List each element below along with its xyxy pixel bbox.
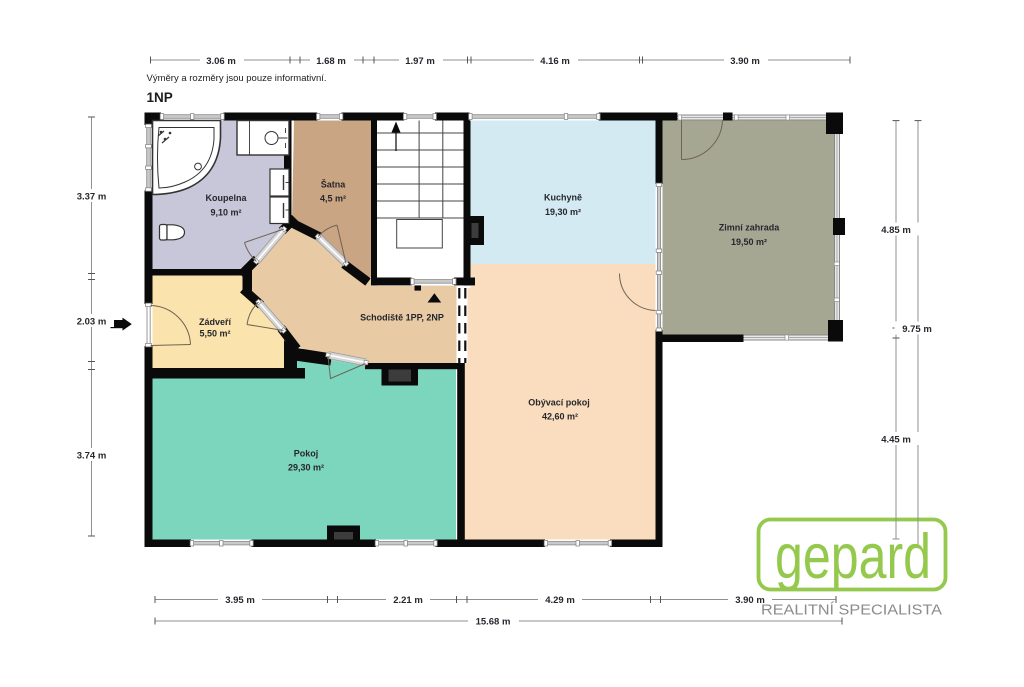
svg-text:Schodiště 1PP, 2NP: Schodiště 1PP, 2NP	[360, 313, 444, 323]
svg-text:4.45 m: 4.45 m	[881, 435, 911, 446]
svg-text:9,10 m²: 9,10 m²	[210, 208, 241, 218]
svg-text:Kuchyně: Kuchyně	[544, 193, 582, 203]
svg-text:3.74 m: 3.74 m	[77, 451, 107, 462]
svg-text:15.68 m: 15.68 m	[476, 617, 511, 628]
svg-text:4.16 m: 4.16 m	[540, 56, 570, 67]
svg-text:4,5 m²: 4,5 m²	[320, 194, 346, 204]
svg-text:42,60 m²: 42,60 m²	[542, 412, 578, 422]
svg-text:9.75 m: 9.75 m	[902, 324, 932, 335]
svg-text:2.21 m: 2.21 m	[393, 595, 423, 606]
svg-text:Zádveří: Zádveří	[199, 317, 232, 327]
svg-text:gepard: gepard	[775, 522, 931, 592]
svg-text:Šatna: Šatna	[321, 179, 347, 190]
svg-text:Obývací pokoj: Obývací pokoj	[528, 398, 590, 408]
svg-text:3.06 m: 3.06 m	[206, 56, 236, 67]
svg-text:Zimní zahrada: Zimní zahrada	[719, 223, 781, 233]
svg-text:4.85 m: 4.85 m	[881, 225, 911, 236]
svg-text:3.37 m: 3.37 m	[77, 192, 107, 203]
svg-text:Pokoj: Pokoj	[294, 449, 319, 459]
svg-text:3.95 m: 3.95 m	[225, 595, 255, 606]
svg-text:REALITNÍ SPECIALISTA: REALITNÍ SPECIALISTA	[761, 602, 942, 619]
svg-text:1.97 m: 1.97 m	[405, 56, 435, 67]
svg-text:4.29 m: 4.29 m	[545, 595, 575, 606]
svg-text:5,50 m²: 5,50 m²	[199, 329, 230, 339]
svg-text:19,30 m²: 19,30 m²	[545, 207, 581, 217]
svg-text:3.90 m: 3.90 m	[730, 56, 760, 67]
svg-text:1.68 m: 1.68 m	[316, 56, 346, 67]
svg-text:Výměry a rozměry jsou pouze in: Výměry a rozměry jsou pouze informativní…	[147, 73, 327, 84]
svg-text:1NP: 1NP	[147, 90, 173, 105]
svg-text:Koupelna: Koupelna	[205, 193, 247, 203]
svg-text:19,50 m²: 19,50 m²	[731, 237, 767, 247]
svg-text:29,30 m²: 29,30 m²	[288, 463, 324, 473]
svg-text:2.03 m: 2.03 m	[77, 317, 107, 328]
